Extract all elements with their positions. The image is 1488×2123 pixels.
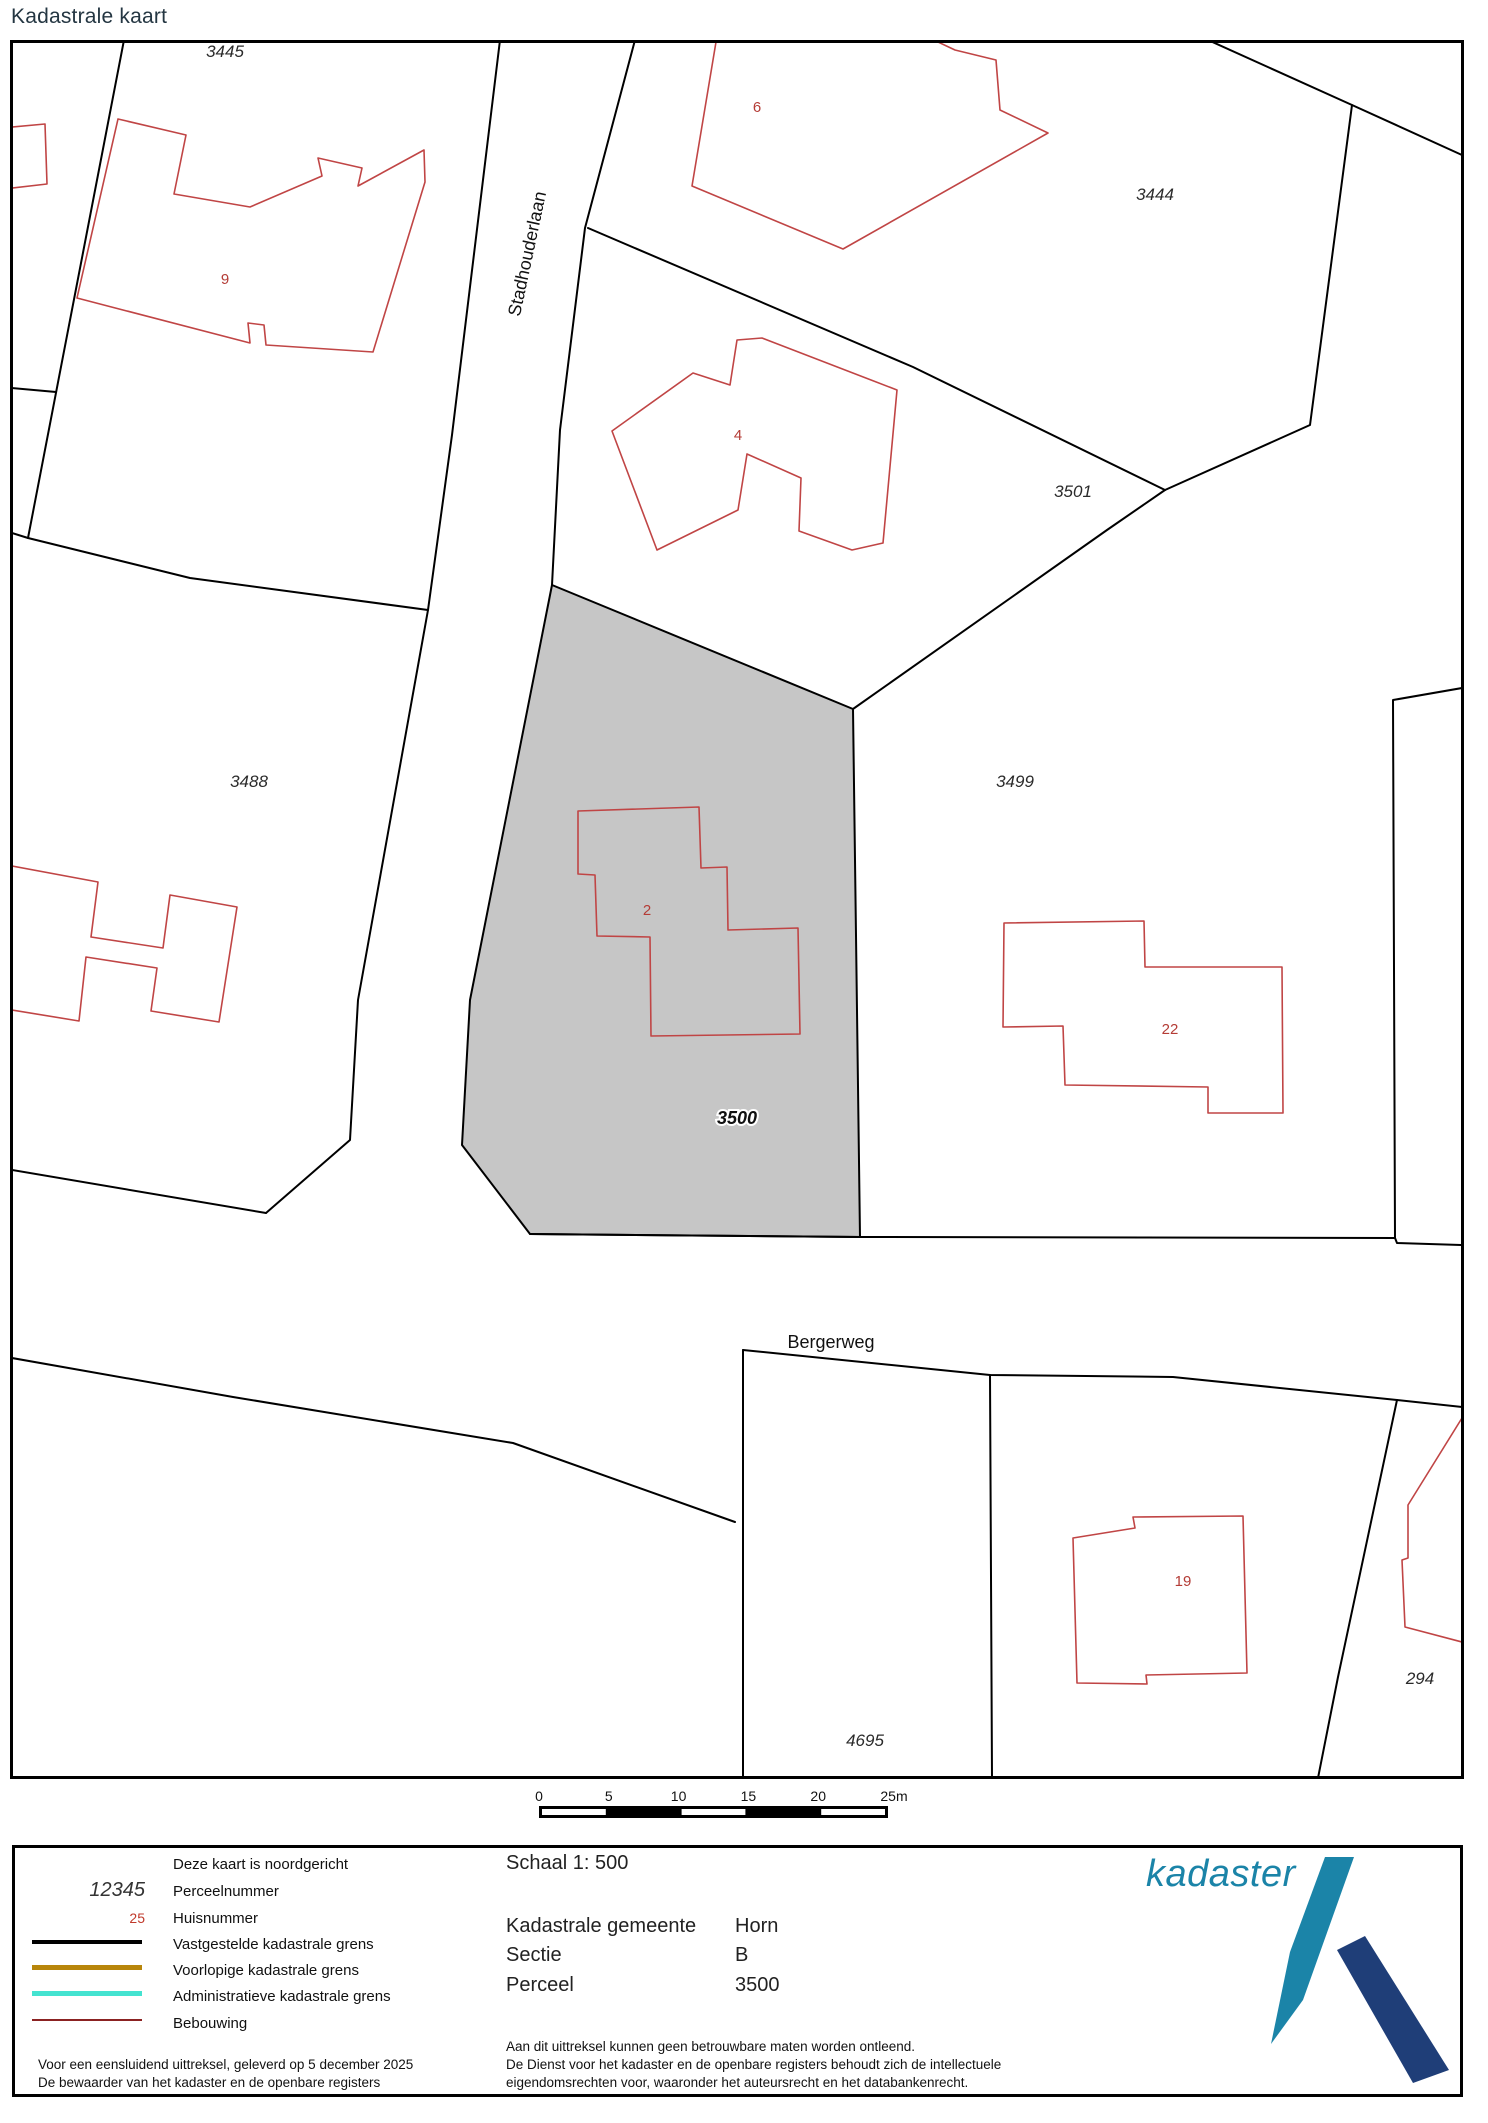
scale-tick-20: 20: [810, 1788, 826, 1804]
legend-symbol-huisnummer: 25: [33, 1910, 145, 1926]
parcel-label-3444: 3444: [1136, 185, 1174, 204]
scale-tick-25m: 25m: [880, 1788, 907, 1804]
footer-line-2: De bewaarder van het kadaster en de open…: [38, 2075, 380, 2091]
street-label-bergerweg: Bergerweg: [787, 1332, 874, 1352]
parcel-label-3488: 3488: [230, 772, 268, 791]
scale-bar: 0 5 10 15 20 25m: [380, 1782, 920, 1827]
scale-tick-15: 15: [741, 1788, 757, 1804]
details-row-sectie-label: Sectie: [506, 1944, 562, 1967]
kadaster-logo-mark-icon: [1255, 1850, 1465, 2092]
parcel-label-3500: 3500: [717, 1108, 757, 1128]
scale-tick-10: 10: [671, 1788, 687, 1804]
details-row-gemeente-value: Horn: [735, 1915, 778, 1938]
legend-panel: Deze kaart is noordgericht 12345 Perceel…: [12, 1845, 1463, 2097]
disclaimer-line-2: De Dienst voor het kadaster en de openba…: [506, 2057, 1001, 2073]
legend-item-voorlopige-grens: Voorlopige kadastrale grens: [173, 1962, 359, 1979]
house-number-4: 4: [734, 427, 742, 444]
legend-item-administratieve-grens: Administratieve kadastrale grens: [173, 1988, 391, 2005]
details-row-perceel-value: 3500: [735, 1974, 780, 1997]
house-number-19: 19: [1175, 1573, 1192, 1590]
house-number-22: 22: [1162, 1021, 1179, 1038]
page-title: Kadastrale kaart: [11, 5, 167, 29]
logo-blade-navy: [1337, 1936, 1449, 2083]
parcel-label-3501: 3501: [1054, 482, 1092, 501]
legend-item-perceelnummer: Perceelnummer: [173, 1883, 279, 1900]
legend-symbol-administratieve-grens-line: [32, 1991, 142, 1996]
details-row-gemeente-label: Kadastrale gemeente: [506, 1915, 696, 1938]
disclaimer-line-3: eigendomsrechten voor, waaronder het aut…: [506, 2075, 968, 2091]
legend-symbol-perceelnummer: 12345: [33, 1879, 145, 1902]
parcel-label-3499: 3499: [996, 772, 1034, 791]
scale-tick-5: 5: [605, 1788, 613, 1804]
legend-item-vastgestelde-grens: Vastgestelde kadastrale grens: [173, 1936, 374, 1953]
cadastral-map: 3445 3444 3501 3488 3499 3500 4695 294 9…: [10, 40, 1464, 1779]
legend-item-bebouwing: Bebouwing: [173, 2015, 247, 2032]
parcel-label-4695: 4695: [846, 1731, 884, 1750]
legend-item-huisnummer: Huisnummer: [173, 1910, 258, 1927]
parcel-label-3445: 3445: [206, 42, 244, 61]
house-number-6: 6: [753, 99, 761, 116]
scale-tick-0: 0: [535, 1788, 543, 1804]
details-row-perceel-label: Perceel: [506, 1974, 574, 1997]
details-schaal: Schaal 1: 500: [506, 1852, 628, 1875]
disclaimer-line-1: Aan dit uittreksel kunnen geen betrouwba…: [506, 2039, 915, 2055]
legend-symbol-bebouwing-line: [32, 2019, 142, 2021]
legend-symbol-vastgestelde-grens-line: [32, 1940, 142, 1944]
details-row-sectie-value: B: [735, 1944, 748, 1967]
legend-symbol-voorlopige-grens-line: [32, 1965, 142, 1970]
legend-item-noordgericht: Deze kaart is noordgericht: [173, 1856, 348, 1873]
parcel-label-294: 294: [1405, 1669, 1434, 1688]
footer-line-1: Voor een eensluidend uittreksel, gelever…: [38, 2057, 413, 2073]
scale-bar-strip: [539, 1806, 888, 1818]
house-number-9: 9: [221, 271, 229, 288]
house-number-2: 2: [643, 902, 651, 919]
